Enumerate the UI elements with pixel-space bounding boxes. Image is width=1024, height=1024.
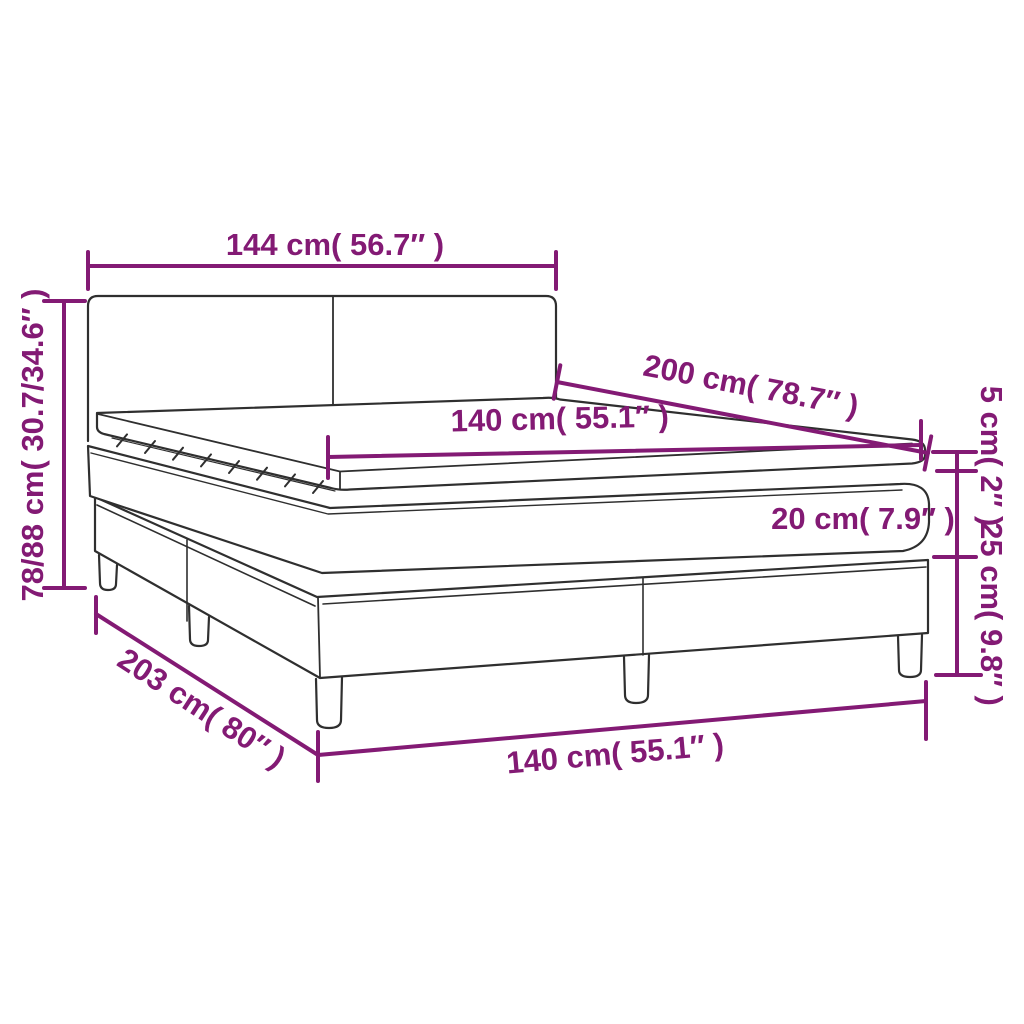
- dim-label-base-height: 25 cm( 9.8″ ): [974, 522, 1009, 706]
- dim-overall-height: [44, 301, 85, 588]
- dim-label-mattress-height: 20 cm( 7.9″ ): [771, 501, 955, 536]
- bed-leg-4: [624, 655, 649, 703]
- dim-label-topper-height: 5 cm( 2″ ): [974, 386, 1009, 527]
- dim-label-mattress-width: 140 cm( 55.1″ ): [450, 399, 669, 439]
- dim-label-frame-length: 203 cm( 80″ ): [112, 641, 292, 775]
- diagram-svg: 144 cm( 56.7″ ) 78/88 cm( 30.7/34.6″ ) 2…: [0, 0, 1024, 1024]
- dim-label-headboard-width: 144 cm( 56.7″ ): [226, 227, 444, 262]
- bed-dimension-diagram: 144 cm( 56.7″ ) 78/88 cm( 30.7/34.6″ ) 2…: [0, 0, 1024, 1024]
- dim-label-overall-height: 78/88 cm( 30.7/34.6″ ): [15, 289, 50, 602]
- bed-leg-3: [316, 677, 342, 728]
- dim-right-column: [933, 452, 981, 675]
- bed-leg-5: [898, 635, 922, 677]
